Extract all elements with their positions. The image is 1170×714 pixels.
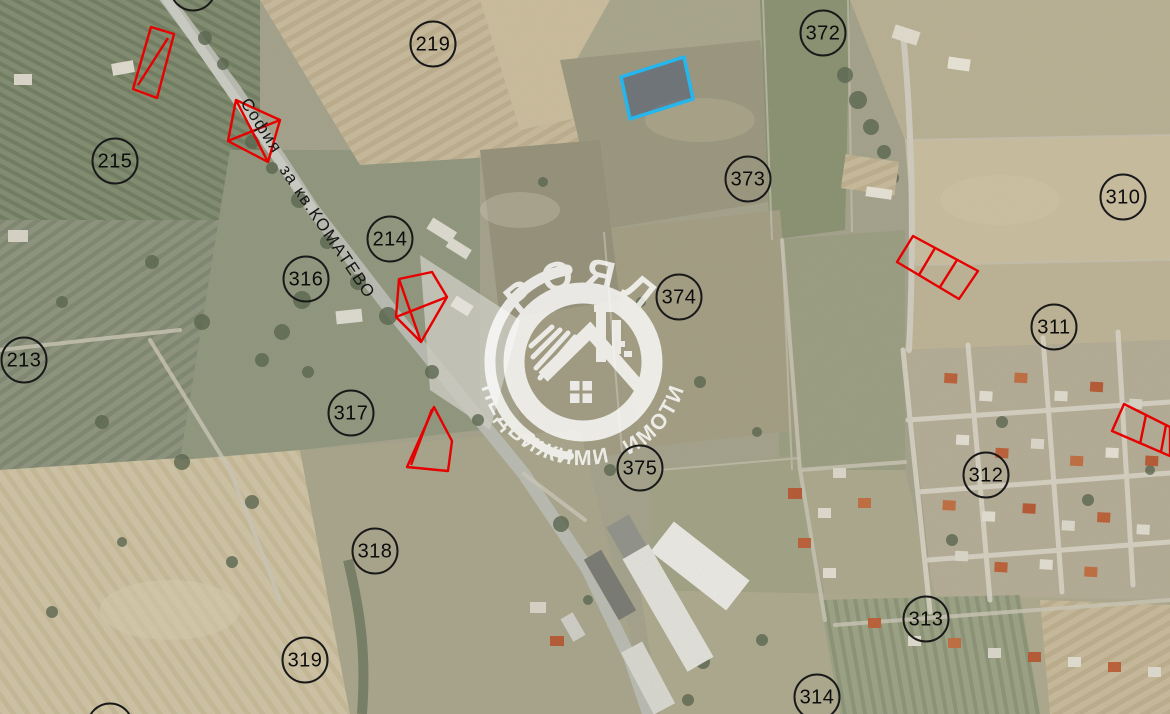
parcel-marker-partial [170, 0, 217, 12]
parcel-marker-312: 312 [963, 452, 1010, 499]
parcel-marker-317: 317 [328, 390, 375, 437]
parcel-marker-318: 318 [352, 528, 399, 575]
parcel-marker-319: 319 [282, 637, 329, 684]
parcel-marker-316: 316 [283, 256, 330, 303]
parcel-marker-215: 215 [92, 138, 139, 185]
parcel-marker-partial [87, 703, 134, 714]
parcel-marker-372: 372 [800, 10, 847, 57]
parcel-marker-313: 313 [903, 596, 950, 643]
parcel-marker-374: 374 [656, 274, 703, 321]
parcel-marker-314: 314 [794, 674, 841, 714]
parcel-marker-375: 375 [617, 445, 664, 492]
parcel-marker-219: 219 [410, 21, 457, 68]
parcel-marker-310: 310 [1100, 174, 1147, 221]
marker-layer: 2193722153733102143163743112133173753123… [0, 0, 1170, 714]
parcel-marker-373: 373 [725, 156, 772, 203]
map-container[interactable]: РОЯЛ НЕДВИЖИМИ ИМОТИ [0, 0, 1170, 714]
parcel-marker-214: 214 [367, 216, 414, 263]
parcel-marker-311: 311 [1031, 304, 1078, 351]
parcel-marker-213: 213 [1, 337, 48, 384]
